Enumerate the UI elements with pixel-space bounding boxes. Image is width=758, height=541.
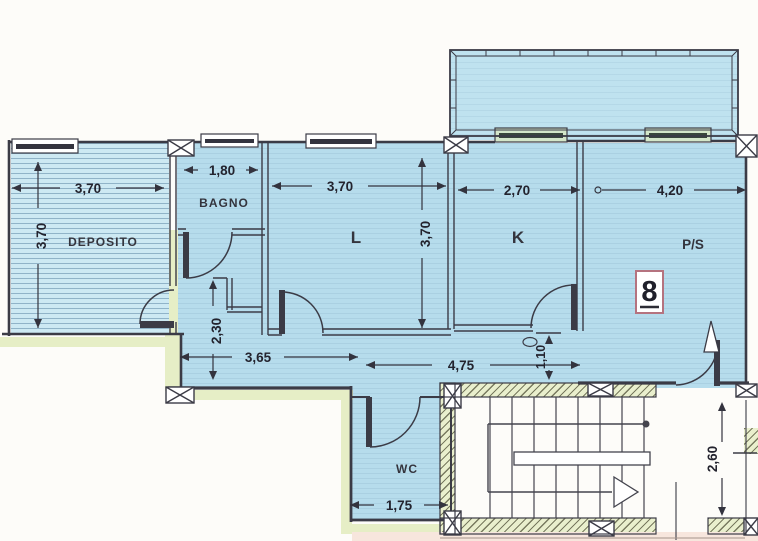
unit-number: 8 — [641, 276, 657, 308]
dim-text: 2,30 — [209, 318, 224, 344]
dim-text: 4,75 — [448, 358, 475, 373]
dim-deposito-depth: 3,70 — [34, 162, 49, 328]
stairwell — [440, 383, 746, 534]
dim-text: 3,65 — [245, 350, 272, 365]
dim-text: 1,10 — [534, 345, 548, 369]
dim-text: 3,70 — [327, 179, 353, 194]
dim-cucina-width: 2,70 — [458, 183, 580, 198]
room-label-bagno: BAGNO — [199, 196, 249, 210]
soggiorno-window — [306, 134, 376, 148]
room-label-ps: P/S — [682, 237, 704, 252]
deposito-window — [12, 139, 78, 153]
stair-direction-arrow-icon — [614, 477, 638, 507]
dim-wc-width: 1,75 — [350, 498, 448, 513]
column-marker — [736, 135, 757, 157]
dim-text: 2,70 — [504, 183, 530, 198]
dim-corridoio-width: 3,65 — [180, 350, 358, 365]
bagno-door — [183, 232, 232, 278]
dim-text: 3,70 — [418, 221, 433, 247]
column-marker — [166, 387, 194, 403]
dim-bagno-width: 1,80 — [184, 163, 258, 178]
column-marker — [588, 383, 613, 396]
room-label-wc: WC — [396, 462, 418, 476]
cucina-door — [523, 284, 577, 347]
dim-text: 1,75 — [386, 498, 413, 513]
doors — [140, 232, 720, 447]
column-marker — [168, 140, 194, 156]
column-marker — [736, 384, 757, 397]
dim-corridoio-depth: 2,30 — [209, 280, 224, 380]
dim-deposito-width: 3,70 — [12, 181, 164, 196]
wc-door — [366, 397, 420, 447]
dim-soggiorno-depth: 3,70 — [418, 158, 433, 328]
room-label-soggiorno: L — [351, 228, 361, 247]
floor-plan: 3,70 3,70 1,80 3,70 3,70 — [0, 0, 758, 541]
stair-landing-divider — [514, 452, 650, 465]
dim-text: 3,70 — [34, 223, 49, 249]
bagno-window — [201, 134, 258, 147]
plan-linework: 3,70 3,70 1,80 3,70 3,70 — [0, 0, 758, 541]
dim-text: 2,60 — [705, 446, 720, 472]
dim-text: 3,70 — [75, 181, 101, 196]
dim-scala-depth: 2,60 — [705, 402, 726, 516]
column-marker — [444, 511, 461, 535]
unit-number-badge: 8 — [636, 271, 663, 313]
room-label-cucina: K — [512, 228, 525, 247]
column-marker — [444, 137, 468, 153]
dim-soggiorno-width: 3,70 — [272, 179, 446, 194]
dim-ps-width: 4,20 — [595, 183, 746, 198]
balcony-railing — [450, 50, 738, 136]
dim-text: 1,80 — [209, 163, 235, 178]
room-labels: DEPOSITO BAGNO L K P/S WC — [68, 196, 704, 476]
room-label-deposito: DEPOSITO — [68, 235, 138, 249]
dim-text: 4,20 — [657, 183, 683, 198]
deposito-door — [140, 290, 174, 328]
soggiorno-door — [279, 290, 323, 334]
entrance-arrow-icon — [704, 321, 719, 352]
entrance-door — [676, 321, 720, 386]
interior-walls — [170, 142, 757, 540]
column-marker — [444, 384, 461, 408]
